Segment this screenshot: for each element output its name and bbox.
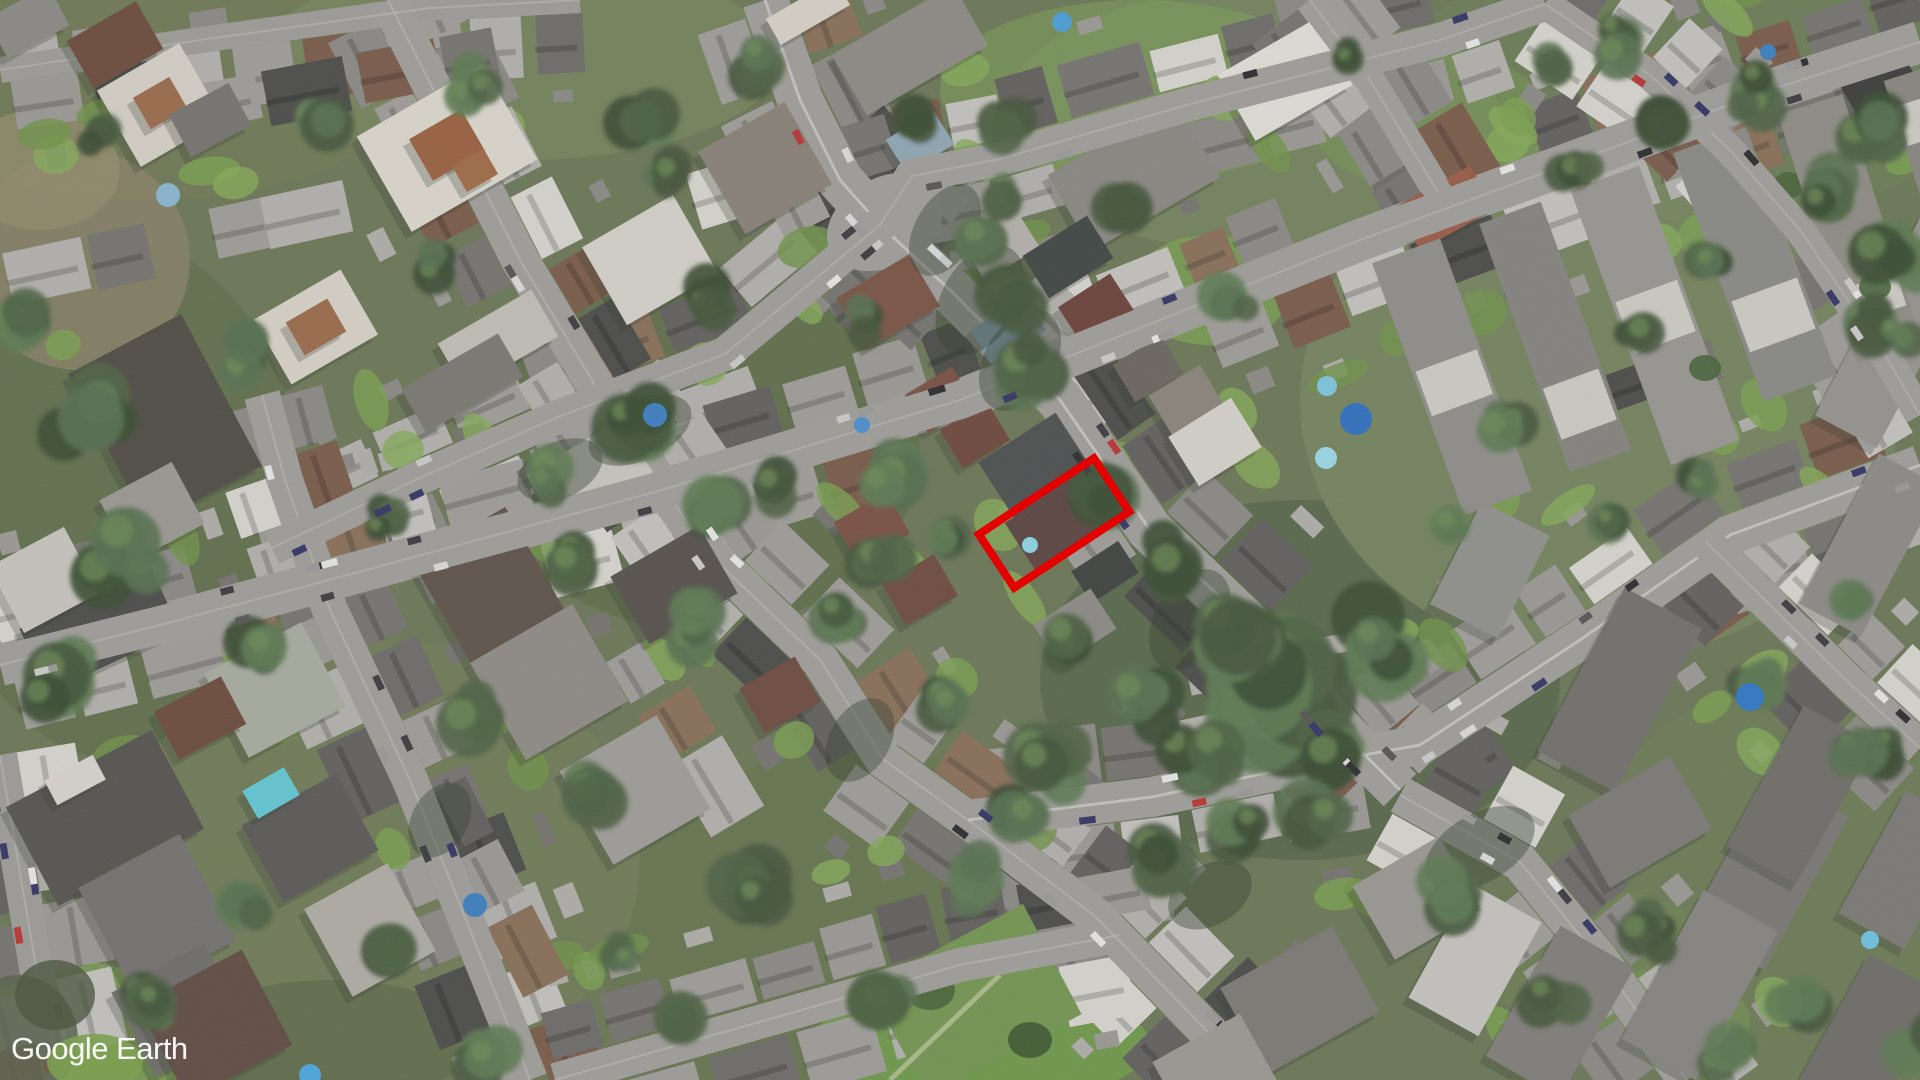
svg-text:Google Earth: Google Earth — [11, 1031, 188, 1066]
